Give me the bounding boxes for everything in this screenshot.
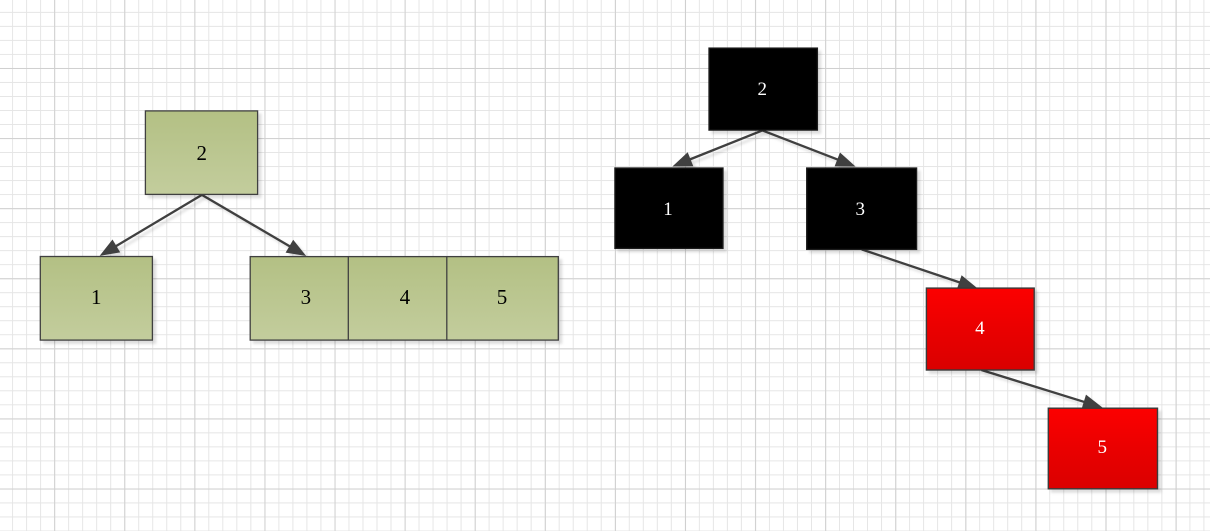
svg-text:5: 5	[497, 285, 508, 309]
svg-text:5: 5	[1097, 437, 1107, 458]
svg-text:1: 1	[91, 285, 102, 309]
svg-text:2: 2	[757, 79, 767, 100]
svg-text:3: 3	[856, 199, 866, 220]
svg-text:4: 4	[975, 318, 985, 339]
svg-text:4: 4	[400, 285, 411, 309]
svg-text:3: 3	[301, 285, 312, 309]
svg-text:1: 1	[663, 199, 673, 220]
svg-text:2: 2	[197, 141, 208, 165]
